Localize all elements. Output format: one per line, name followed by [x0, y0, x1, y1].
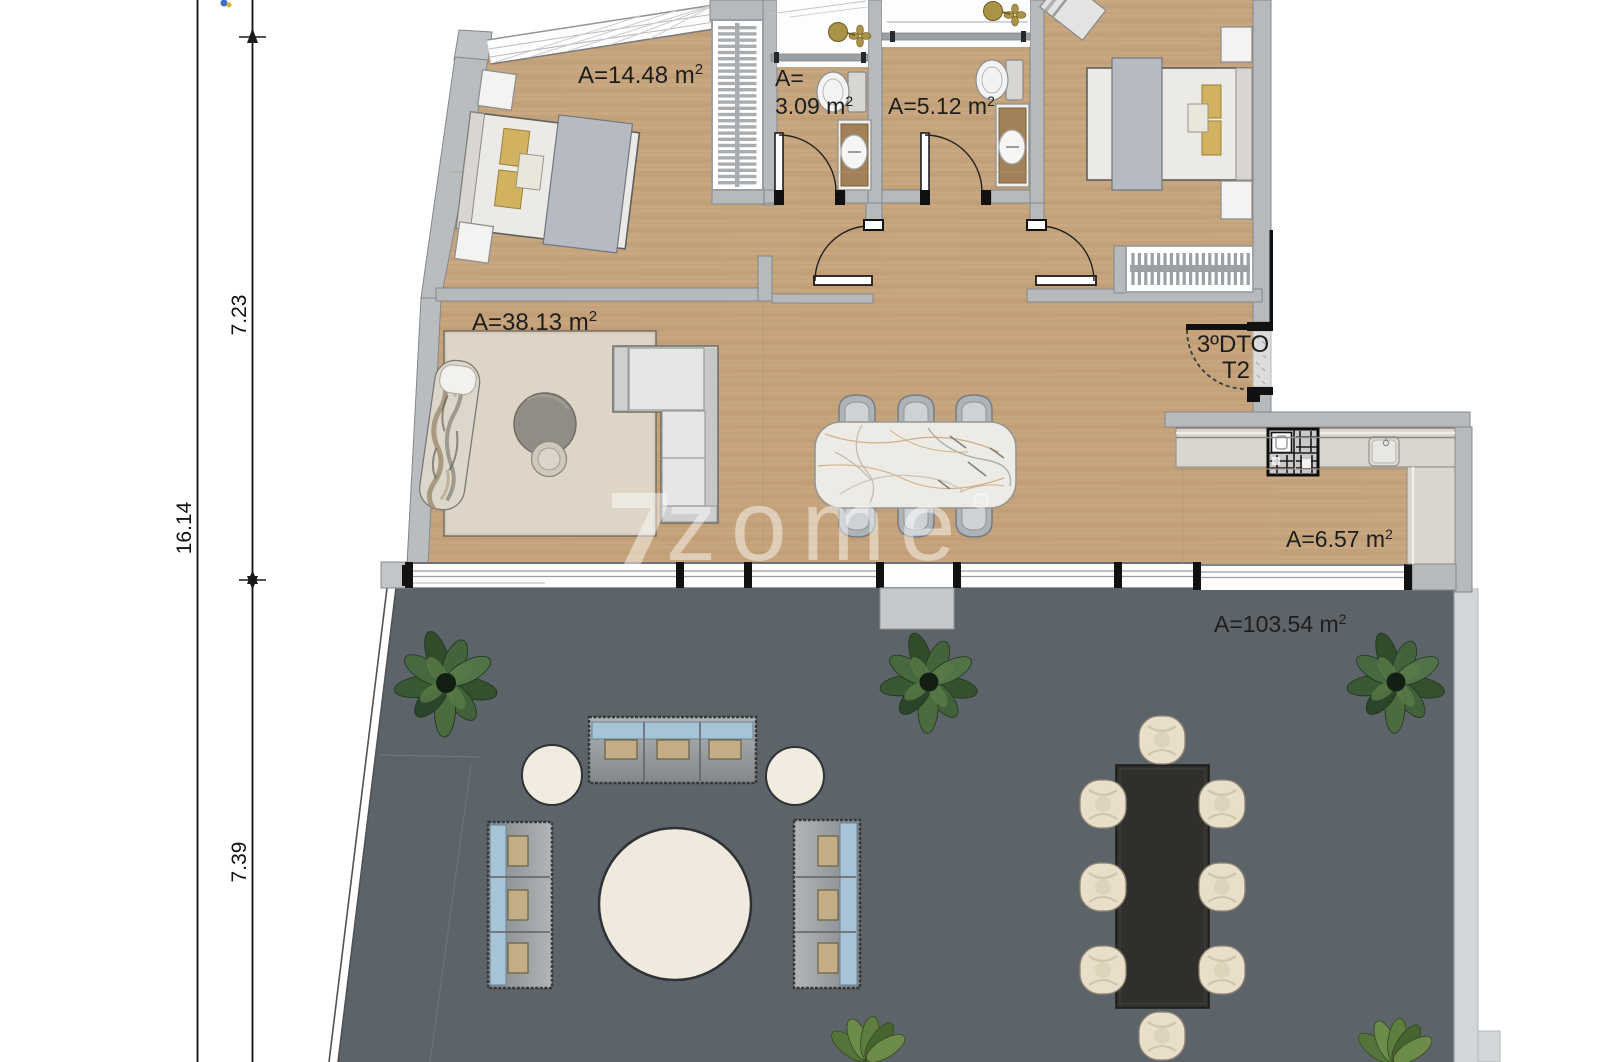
svg-text:A=14.48 m2: A=14.48 m2	[578, 61, 703, 89]
svg-text:A=38.13 m2: A=38.13 m2	[472, 308, 597, 336]
svg-text:A=103.54 m2: A=103.54 m2	[1214, 611, 1347, 637]
svg-text:16.14: 16.14	[173, 501, 196, 554]
svg-text:T2: T2	[1222, 357, 1250, 384]
svg-text:A=6.57 m2: A=6.57 m2	[1286, 526, 1393, 552]
svg-text:A=5.12 m2: A=5.12 m2	[888, 93, 995, 119]
svg-text:A=: A=	[775, 65, 804, 91]
svg-text:3.09 m2: 3.09 m2	[775, 93, 853, 119]
svg-text:7.39: 7.39	[228, 842, 251, 883]
svg-text:3ºDTO: 3ºDTO	[1197, 331, 1269, 358]
svg-text:zome: zome	[666, 470, 971, 582]
svg-text:R: R	[978, 498, 985, 508]
svg-text:7.23: 7.23	[228, 295, 251, 336]
